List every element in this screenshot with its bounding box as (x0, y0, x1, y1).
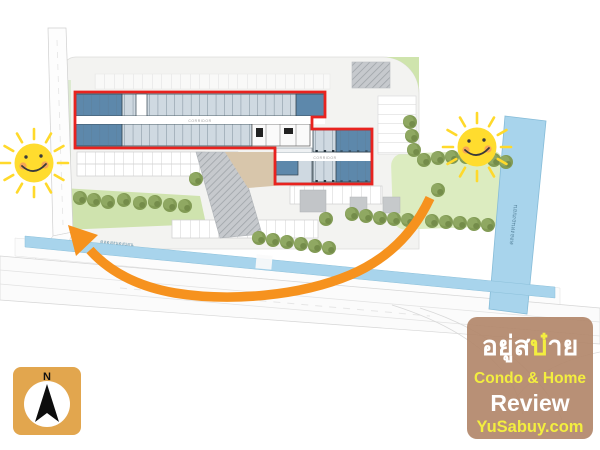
site-plan-image: คลองหนองบอน คลองหนองบอน (0, 0, 600, 450)
service-core (252, 124, 310, 146)
watermark-tagline: Condo & Home (474, 370, 586, 387)
watermark-review: Review (490, 390, 569, 416)
canal-bridge (255, 254, 272, 269)
lift-shaft (136, 94, 147, 116)
hatched-block (352, 62, 390, 88)
corridor-wing-label: CORRIDOR (313, 156, 336, 160)
corridor-main-label: CORRIDOR (188, 119, 211, 123)
compass-icon: N (13, 367, 81, 435)
compass-north-label: N (43, 371, 51, 383)
watermark-site: YuSabuy.com (477, 418, 584, 436)
watermark: อยู่สบ๋าย Condo & Home Review YuSabuy.co… (467, 317, 593, 439)
watermark-brand: อยู่สบ๋าย (482, 331, 579, 363)
site-plan-canvas: คลองหนองบอน คลองหนองบอน (0, 0, 600, 450)
